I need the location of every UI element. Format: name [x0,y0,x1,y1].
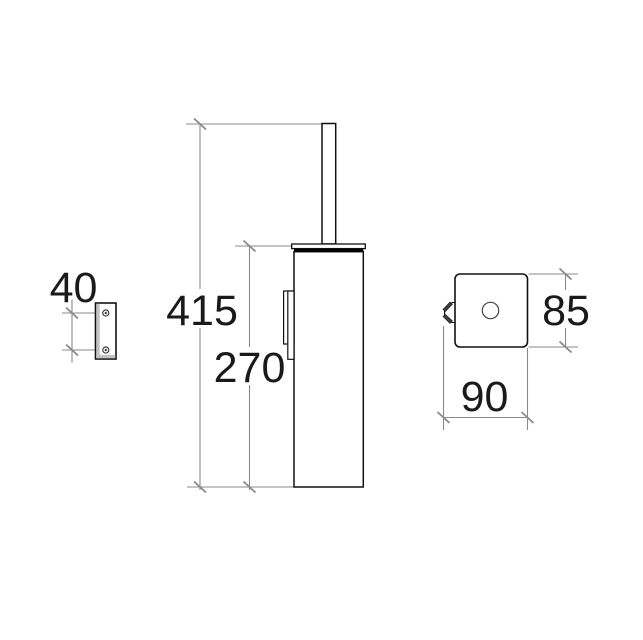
screw-dot [105,312,107,314]
brush-handle [322,124,336,245]
brush-handle-hole [482,302,498,318]
dimension-270: 270 [214,241,292,493]
mount-plate-bottom-shading [96,355,115,358]
view-mount-plate-side: 40 [50,264,116,363]
dimension-label: 270 [214,344,286,392]
dimension-label: 85 [542,287,590,335]
dimension-drawing-canvas: 40 415 [0,0,643,640]
mount-plate-edge-shading [96,304,99,358]
clip-jaw-bottom [443,315,453,324]
dimension-label: 90 [461,373,509,421]
technical-drawing: 40 415 [0,0,643,640]
mount-plate [96,303,117,359]
brush-holder-top [443,274,528,347]
holder-body [294,252,363,487]
dimension-85: 85 [529,269,590,353]
view-holder-top: 85 90 [438,269,590,431]
wall-bracket-arm [288,291,294,359]
dimension-label: 415 [166,287,238,335]
dimension-label: 40 [50,264,98,312]
screw-dot [105,349,107,351]
view-holder-front: 415 270 [166,119,365,493]
holder-lid [292,244,366,249]
brush-holder-front [284,124,366,488]
clip-jaw-top [443,302,453,312]
wall-clip [443,302,455,324]
